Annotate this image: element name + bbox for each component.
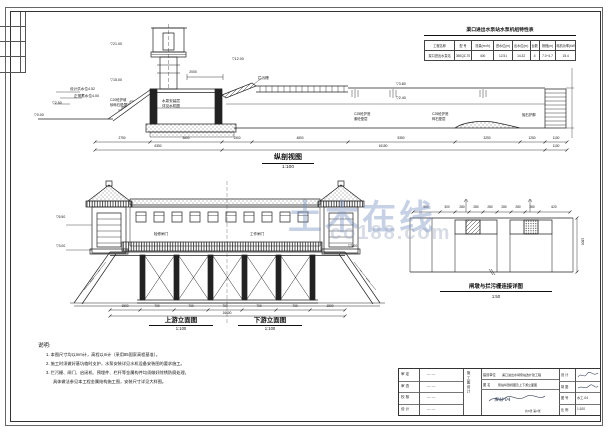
dim-label: 1500	[320, 305, 340, 309]
elevation-scale-downstream: 1:100	[238, 327, 302, 332]
material-label: 素砼垫层	[354, 118, 368, 122]
dim-label: 550	[418, 206, 434, 210]
title-block: 审 定 — — 审 查 — — 校 核 — — 设 计 — — 施工图设计 建设…	[398, 368, 601, 416]
dim-label: 700	[215, 305, 235, 309]
elevation-mark: ▽15.00	[96, 78, 122, 82]
elevation-mark: ▽0.00	[34, 113, 44, 117]
dim-label: 700	[181, 305, 201, 309]
title-block-line	[559, 381, 600, 382]
water-level-label: ▽3.80	[396, 82, 406, 86]
section-caption: 纵剖视图	[262, 154, 314, 164]
dim-label: 1100	[544, 137, 568, 141]
drawing-name: 泵站纵剖视图及上下游立面图	[498, 383, 558, 387]
elevation-mark: ▽3.00	[56, 245, 65, 249]
design-stage-label: 施工图设计	[467, 371, 472, 413]
titleblock-role-label: 比 例	[561, 407, 575, 412]
drawing-name-label: 图 名	[483, 382, 497, 387]
dim-label: 700	[249, 305, 269, 309]
signature-scribble	[487, 393, 547, 405]
water-level-label: 设计洪水位4.52	[70, 87, 95, 91]
dim-label: 3250	[475, 137, 499, 141]
elevation-scale-upstream: 1:100	[149, 327, 213, 332]
titleblock-role-label: 设 计	[561, 372, 575, 377]
dim-label: 300	[439, 206, 455, 210]
dim-label: 16150	[371, 145, 395, 149]
water-level-label: 正常蓄水位4.00	[74, 94, 99, 98]
title-block-line	[463, 369, 464, 415]
elevation-mark: ▽3.00	[348, 245, 357, 249]
project-name: 渠口进出水闸泵站改扩建工程	[502, 373, 558, 377]
signature-dash: — —	[427, 407, 461, 411]
title-block-line	[481, 389, 559, 390]
note-item: 2. 施工时须做好基坑临时支护，水泵安装详见水机设备安装图的要求施工。	[46, 362, 185, 367]
signature-dash: — —	[427, 384, 461, 388]
detail-scale: 1:50	[440, 295, 552, 300]
title-block-line	[559, 404, 600, 405]
material-label: 砂砾石垫层	[110, 104, 127, 108]
dim-label: 700	[147, 305, 167, 309]
titleblock-role-label: 审 定	[401, 372, 418, 377]
signoff-line	[0, 41, 25, 42]
dim-label: 2750	[110, 137, 134, 141]
titleblock-role-label: 审 查	[401, 384, 418, 389]
signature-dash: — —	[427, 395, 461, 399]
title-block-line	[575, 369, 576, 415]
dim-label: 4800	[288, 137, 312, 141]
sheet-count: 共4张 第2张	[525, 409, 558, 413]
titleblock-role-label: 图 号	[561, 395, 575, 400]
dim-label: 1100	[544, 145, 568, 149]
titleblock-role-label: 制 图	[561, 384, 575, 389]
elevation-mark: ▽6.50	[56, 216, 65, 220]
signoff-line	[20, 12, 21, 72]
title-block-line	[559, 392, 600, 393]
title-block-line	[419, 369, 420, 415]
signoff-line	[0, 26, 25, 27]
water-level-label: ▽2.40	[396, 96, 406, 100]
titleblock-value: 水工-04	[577, 395, 598, 400]
title-block-line	[399, 404, 463, 405]
elevation-mark: ▽21.00	[96, 42, 122, 46]
note-item: 1. 本图尺寸均以mm计，高程以m计（采用85国家高程基准）。	[46, 353, 160, 358]
note-item: 具体做法参见本工程金属结构施工图，安装尺寸详见大样图。	[53, 380, 166, 385]
room-label: 详见水机图	[162, 104, 180, 108]
gate-label: 工作闸门	[242, 232, 272, 236]
cad-drawing-sheet: { "watermark": { "main": "土木在线", "sub": …	[0, 0, 610, 432]
dim-label: 5350	[389, 137, 413, 141]
notes-heading: 说明:	[38, 343, 50, 349]
gate-label: 检修闸门	[146, 232, 176, 236]
dim-label: 700	[285, 305, 305, 309]
dim-label: 280	[524, 206, 540, 210]
note-item: 3. 拦污栅、闸门、启闭机、预埋件、栏杆等金属构件均须做好除锈防腐处理，	[46, 371, 189, 376]
title-block-line	[481, 379, 559, 380]
titleblock-value: 1:100	[577, 407, 598, 411]
title-block-line	[399, 381, 463, 382]
titleblock-role-label: 校 核	[401, 395, 418, 400]
owner-label: 建设单位	[483, 372, 501, 377]
signature-scribble	[577, 371, 599, 380]
room-label: 水泵安装层	[162, 99, 180, 103]
dim-label: 1250	[520, 137, 544, 141]
dim-label: 1500	[115, 305, 135, 309]
title-block-line	[399, 392, 463, 393]
section-scale: 1:100	[262, 165, 314, 171]
signoff-strip	[0, 12, 26, 73]
elevation-mark: ▽2.50	[52, 101, 62, 105]
material-label: 碎石垫层	[432, 118, 446, 122]
dim-label: 1500	[225, 137, 249, 141]
dim-label: 620	[546, 206, 562, 210]
dim-label: 6350	[146, 145, 170, 149]
material-label: C20砼护坡	[110, 99, 126, 103]
trash-rack-label: 拦污栅	[258, 76, 269, 80]
title-block-line	[481, 369, 482, 415]
signoff-line	[0, 56, 25, 57]
elevation-mark: ▽12.00	[232, 57, 244, 61]
signature-dash: — —	[427, 372, 461, 376]
dim-label: 3600	[174, 137, 198, 141]
dim-label: 2000	[180, 71, 206, 75]
detail-caption: 闸墩与拦污栅连接详图	[440, 284, 552, 292]
titleblock-role-label: 设 计	[401, 407, 418, 412]
signature-scribble	[577, 383, 599, 392]
dim-label: 1600	[580, 238, 584, 245]
material-label: 抛石护脚	[522, 114, 536, 118]
dim-label: 16600	[207, 312, 247, 316]
